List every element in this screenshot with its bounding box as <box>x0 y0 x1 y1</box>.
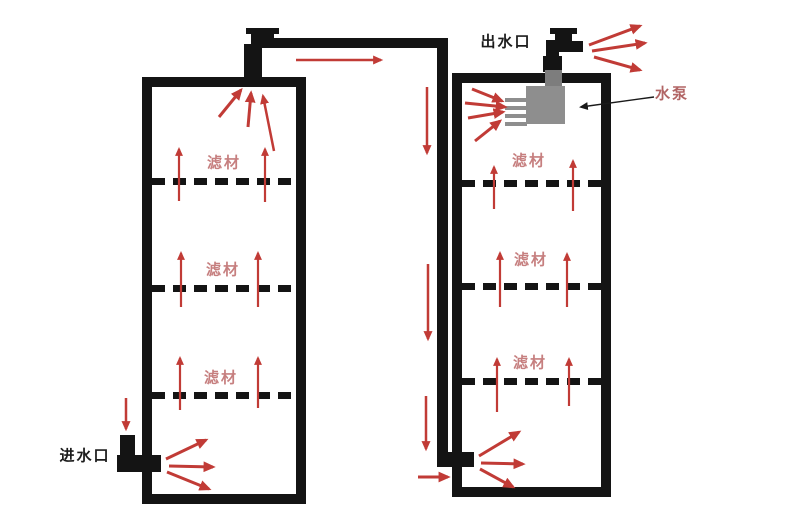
pump-label: 水泵 <box>655 83 689 104</box>
filter-diagram: 出水口 进水口 水泵 滤材 滤材 滤材 滤材 滤材 滤材 <box>0 0 800 520</box>
filter-media-label: 滤材 <box>207 152 241 173</box>
pump-pointer-arrow <box>581 97 654 107</box>
filter-media-label: 滤材 <box>204 367 238 388</box>
flow-arrow-inlet-fan <box>480 469 513 487</box>
flow-arrow-inlet-fan <box>481 463 523 464</box>
flow-arrow-outlet-spray <box>592 43 645 51</box>
flow-arrow-pump-intake <box>468 112 503 118</box>
inlet-label: 进水口 <box>59 445 110 466</box>
filter-media-label: 滤材 <box>514 249 548 270</box>
flow-arrow-inlet-fan <box>166 440 206 459</box>
filter-media-label: 滤材 <box>513 352 547 373</box>
flow-arrow-pump-intake <box>475 121 500 141</box>
flow-arrow-left-top <box>248 93 251 127</box>
flow-arrows-layer <box>0 0 800 520</box>
flow-arrow-inlet-fan <box>479 432 519 456</box>
flow-arrow-outlet-spray <box>594 57 640 70</box>
flow-arrow-outlet-spray <box>589 26 640 45</box>
filter-media-label: 滤材 <box>206 259 240 280</box>
outlet-label: 出水口 <box>480 31 531 52</box>
flow-arrow-inlet-fan <box>169 466 213 467</box>
flow-arrow-pump-intake <box>472 89 502 101</box>
filter-media-label: 滤材 <box>512 150 546 171</box>
flow-arrow-inlet-fan <box>167 472 209 489</box>
flow-arrow-left-top <box>263 96 274 151</box>
flow-arrow-left-top <box>219 90 241 117</box>
flow-arrow-pump-intake <box>465 103 505 107</box>
